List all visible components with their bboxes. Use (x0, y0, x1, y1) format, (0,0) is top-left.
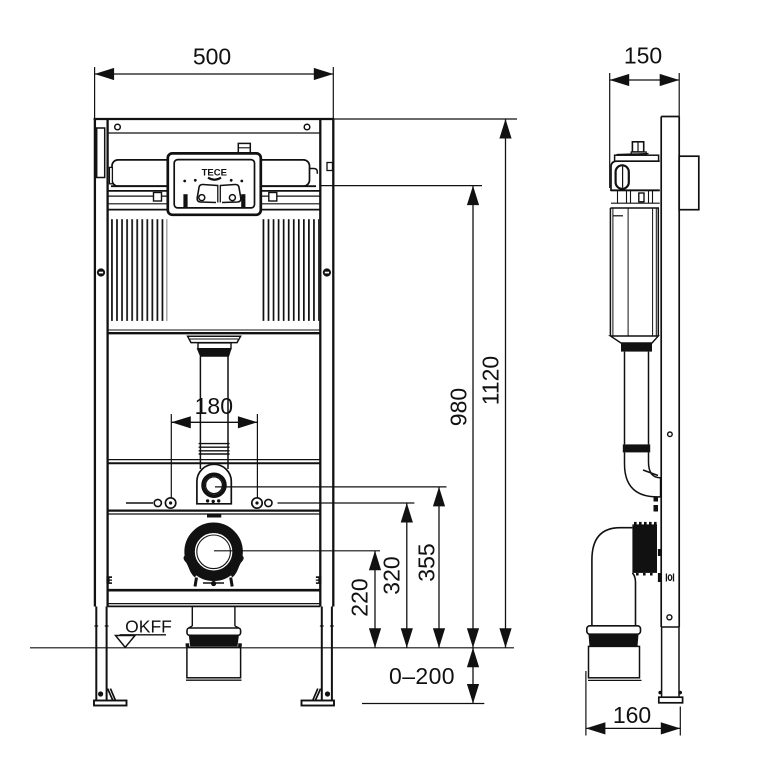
svg-text:180: 180 (195, 393, 233, 419)
svg-text:1120: 1120 (478, 356, 504, 405)
svg-text:150: 150 (624, 43, 662, 69)
svg-text:320: 320 (379, 556, 405, 594)
svg-text:355: 355 (414, 543, 440, 581)
svg-text:OKFF: OKFF (125, 617, 172, 637)
svg-text:TECE: TECE (202, 167, 227, 178)
svg-text:220: 220 (347, 578, 373, 616)
svg-text:0–200: 0–200 (389, 663, 455, 689)
svg-text:160: 160 (613, 702, 651, 728)
svg-text:980: 980 (446, 388, 472, 426)
svg-text:500: 500 (193, 44, 231, 70)
